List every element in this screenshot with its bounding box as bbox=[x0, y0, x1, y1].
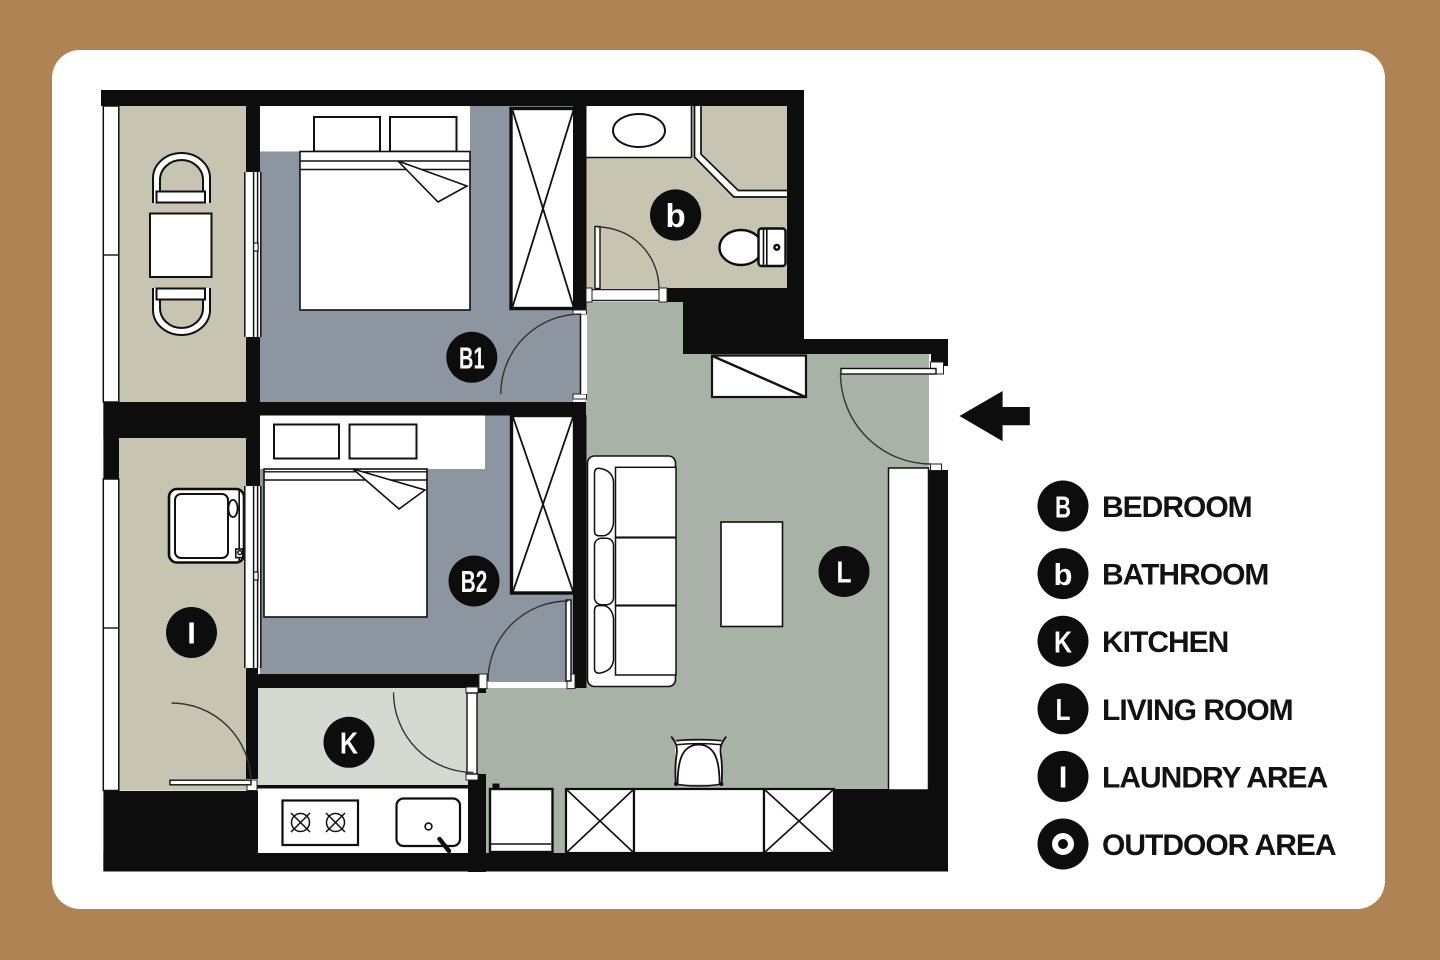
svg-text:OUTDOOR AREA: OUTDOOR AREA bbox=[1102, 829, 1336, 862]
svg-text:LIVING ROOM: LIVING ROOM bbox=[1102, 694, 1293, 727]
svg-text:BATHROOM: BATHROOM bbox=[1102, 559, 1268, 592]
svg-text:BEDROOM: BEDROOM bbox=[1102, 491, 1252, 524]
svg-text:K: K bbox=[1054, 625, 1072, 660]
svg-text:B: B bbox=[1055, 489, 1071, 524]
svg-text:I: I bbox=[187, 616, 196, 651]
svg-text:b: b bbox=[666, 197, 686, 234]
svg-text:L: L bbox=[837, 555, 852, 590]
svg-text:b: b bbox=[1054, 557, 1073, 592]
svg-text:B2: B2 bbox=[461, 564, 488, 599]
svg-text:LAUNDRY AREA: LAUNDRY AREA bbox=[1102, 762, 1328, 795]
svg-text:I: I bbox=[1059, 760, 1068, 795]
svg-text:K: K bbox=[340, 725, 358, 760]
svg-text:L: L bbox=[1056, 692, 1071, 727]
svg-text:KITCHEN: KITCHEN bbox=[1102, 626, 1228, 659]
svg-text:B1: B1 bbox=[459, 340, 485, 375]
